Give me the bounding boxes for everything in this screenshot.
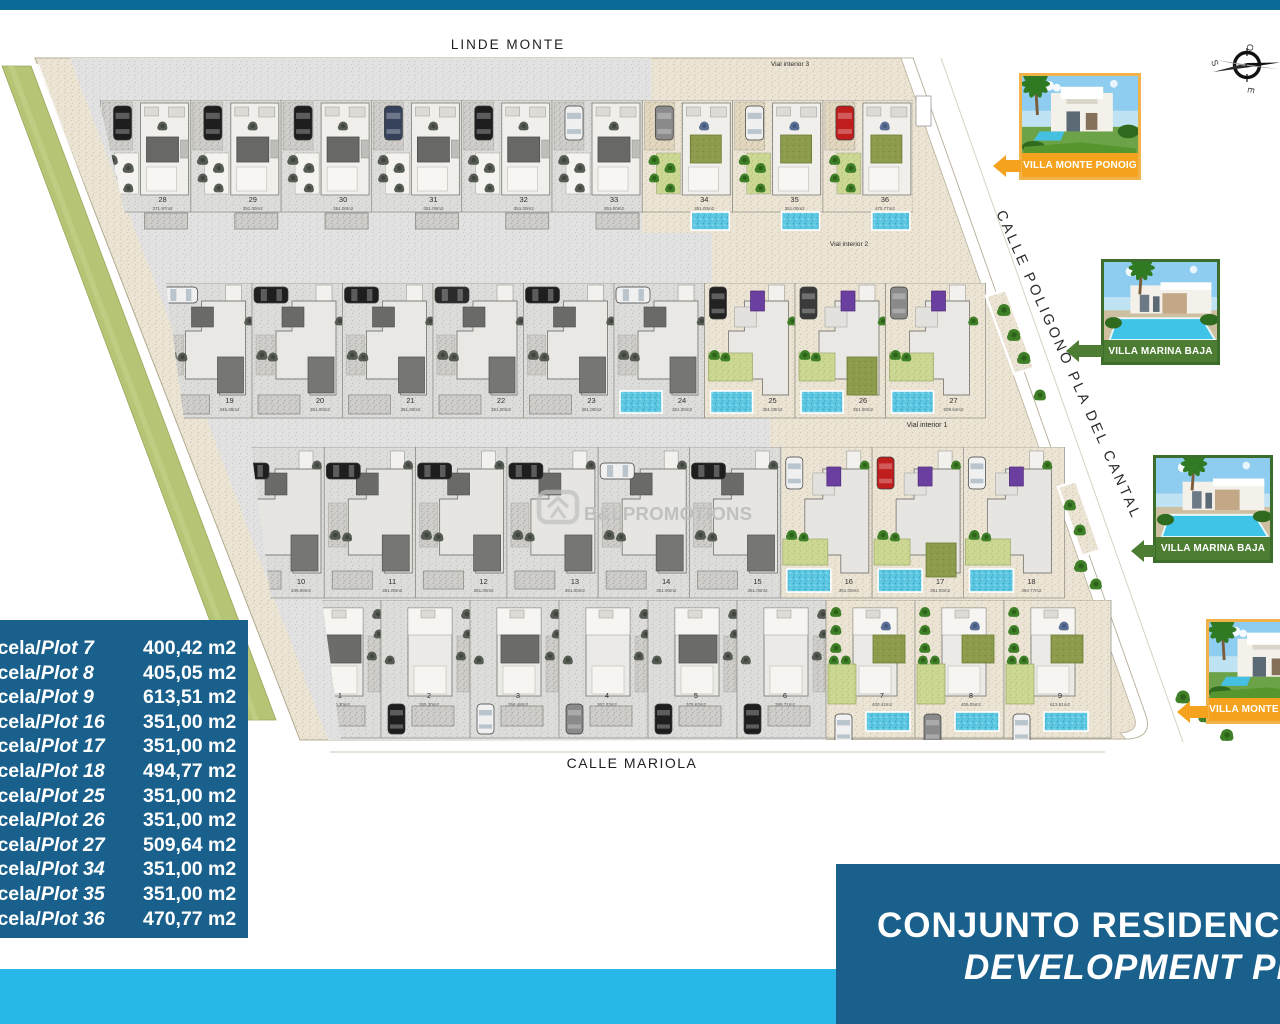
svg-text:15: 15	[753, 577, 761, 586]
svg-text:22: 22	[497, 396, 505, 405]
svg-text:E: E	[1246, 87, 1257, 95]
svg-text:351.00m2: 351.00m2	[423, 206, 444, 211]
svg-text:S: S	[1209, 58, 1220, 67]
svg-text:Vial interior 3: Vial interior 3	[771, 61, 810, 68]
svg-text:351.00m2: 351.00m2	[310, 407, 331, 412]
svg-text:31: 31	[429, 195, 437, 204]
svg-text:13: 13	[571, 577, 579, 586]
svg-text:28: 28	[158, 195, 166, 204]
svg-text:351.00m2: 351.00m2	[694, 206, 715, 211]
svg-text:9: 9	[1058, 691, 1062, 700]
svg-text:25: 25	[768, 396, 776, 405]
svg-text:349.69m2: 349.69m2	[291, 588, 312, 593]
svg-text:32: 32	[520, 195, 528, 204]
svg-text:LINDE MONTE: LINDE MONTE	[451, 37, 565, 52]
svg-text:14: 14	[662, 577, 670, 586]
svg-text:12: 12	[479, 577, 487, 586]
svg-text:5: 5	[694, 691, 698, 700]
svg-text:400.42m2: 400.42m2	[872, 702, 893, 707]
svg-text:3: 3	[516, 691, 520, 700]
svg-text:Vial interior 2: Vial interior 2	[830, 241, 869, 248]
svg-text:351.00m2: 351.00m2	[853, 407, 874, 412]
svg-text:20: 20	[316, 396, 324, 405]
svg-text:30: 30	[339, 195, 347, 204]
svg-text:351.00m2: 351.00m2	[400, 407, 421, 412]
svg-text:351.00m2: 351.00m2	[604, 206, 625, 211]
svg-text:7: 7	[880, 691, 884, 700]
svg-text:345.38m2: 345.38m2	[219, 407, 240, 412]
svg-text:O: O	[1244, 43, 1255, 52]
svg-text:613.51m2: 613.51m2	[1050, 702, 1071, 707]
svg-text:351.00m2: 351.00m2	[514, 206, 535, 211]
svg-text:351.00m2: 351.00m2	[930, 588, 951, 593]
svg-text:405.05m2: 405.05m2	[961, 702, 982, 707]
svg-text:351.00m2: 351.00m2	[839, 588, 860, 593]
svg-text:33: 33	[610, 195, 618, 204]
svg-text:26: 26	[859, 396, 867, 405]
svg-text:351.00m2: 351.00m2	[747, 588, 768, 593]
svg-text:CALLE MARIOLA: CALLE MARIOLA	[567, 755, 698, 771]
svg-text:371.97m2: 371.97m2	[152, 206, 173, 211]
svg-text:351.00m2: 351.00m2	[565, 588, 586, 593]
svg-text:23: 23	[587, 396, 595, 405]
svg-text:8: 8	[969, 691, 973, 700]
svg-text:34: 34	[700, 195, 708, 204]
svg-text:351.00m2: 351.00m2	[672, 407, 693, 412]
svg-text:4: 4	[605, 691, 609, 700]
svg-text:6: 6	[783, 691, 787, 700]
svg-text:351.00m2: 351.00m2	[243, 206, 264, 211]
svg-text:509.64m2: 509.64m2	[943, 407, 964, 412]
svg-text:351.00m2: 351.00m2	[474, 588, 495, 593]
svg-text:351.00m2: 351.00m2	[656, 588, 677, 593]
svg-text:351.00m2: 351.00m2	[333, 206, 354, 211]
svg-text:11: 11	[388, 577, 396, 586]
svg-text:1: 1	[338, 691, 342, 700]
svg-text:17: 17	[936, 577, 944, 586]
svg-text:16: 16	[845, 577, 853, 586]
svg-text:24: 24	[678, 396, 686, 405]
svg-text:27: 27	[949, 396, 957, 405]
svg-text:35: 35	[790, 195, 798, 204]
svg-text:351.00m2: 351.00m2	[785, 206, 806, 211]
svg-text:351.00m2: 351.00m2	[762, 407, 783, 412]
svg-text:351.00m2: 351.00m2	[581, 407, 602, 412]
svg-text:Vial interior 1: Vial interior 1	[907, 422, 948, 429]
svg-text:36: 36	[881, 195, 889, 204]
svg-text:351.00m2: 351.00m2	[491, 407, 512, 412]
svg-text:B&LPROMOTIONS: B&LPROMOTIONS	[584, 503, 752, 524]
svg-text:10: 10	[297, 577, 305, 586]
svg-text:19: 19	[225, 396, 233, 405]
svg-text:470.77m2: 470.77m2	[875, 206, 896, 211]
svg-text:18: 18	[1027, 577, 1035, 586]
svg-text:29: 29	[249, 195, 257, 204]
svg-text:351.00m2: 351.00m2	[382, 588, 403, 593]
svg-text:2: 2	[427, 691, 431, 700]
svg-text:21: 21	[406, 396, 414, 405]
svg-text:494.77m2: 494.77m2	[1021, 588, 1042, 593]
